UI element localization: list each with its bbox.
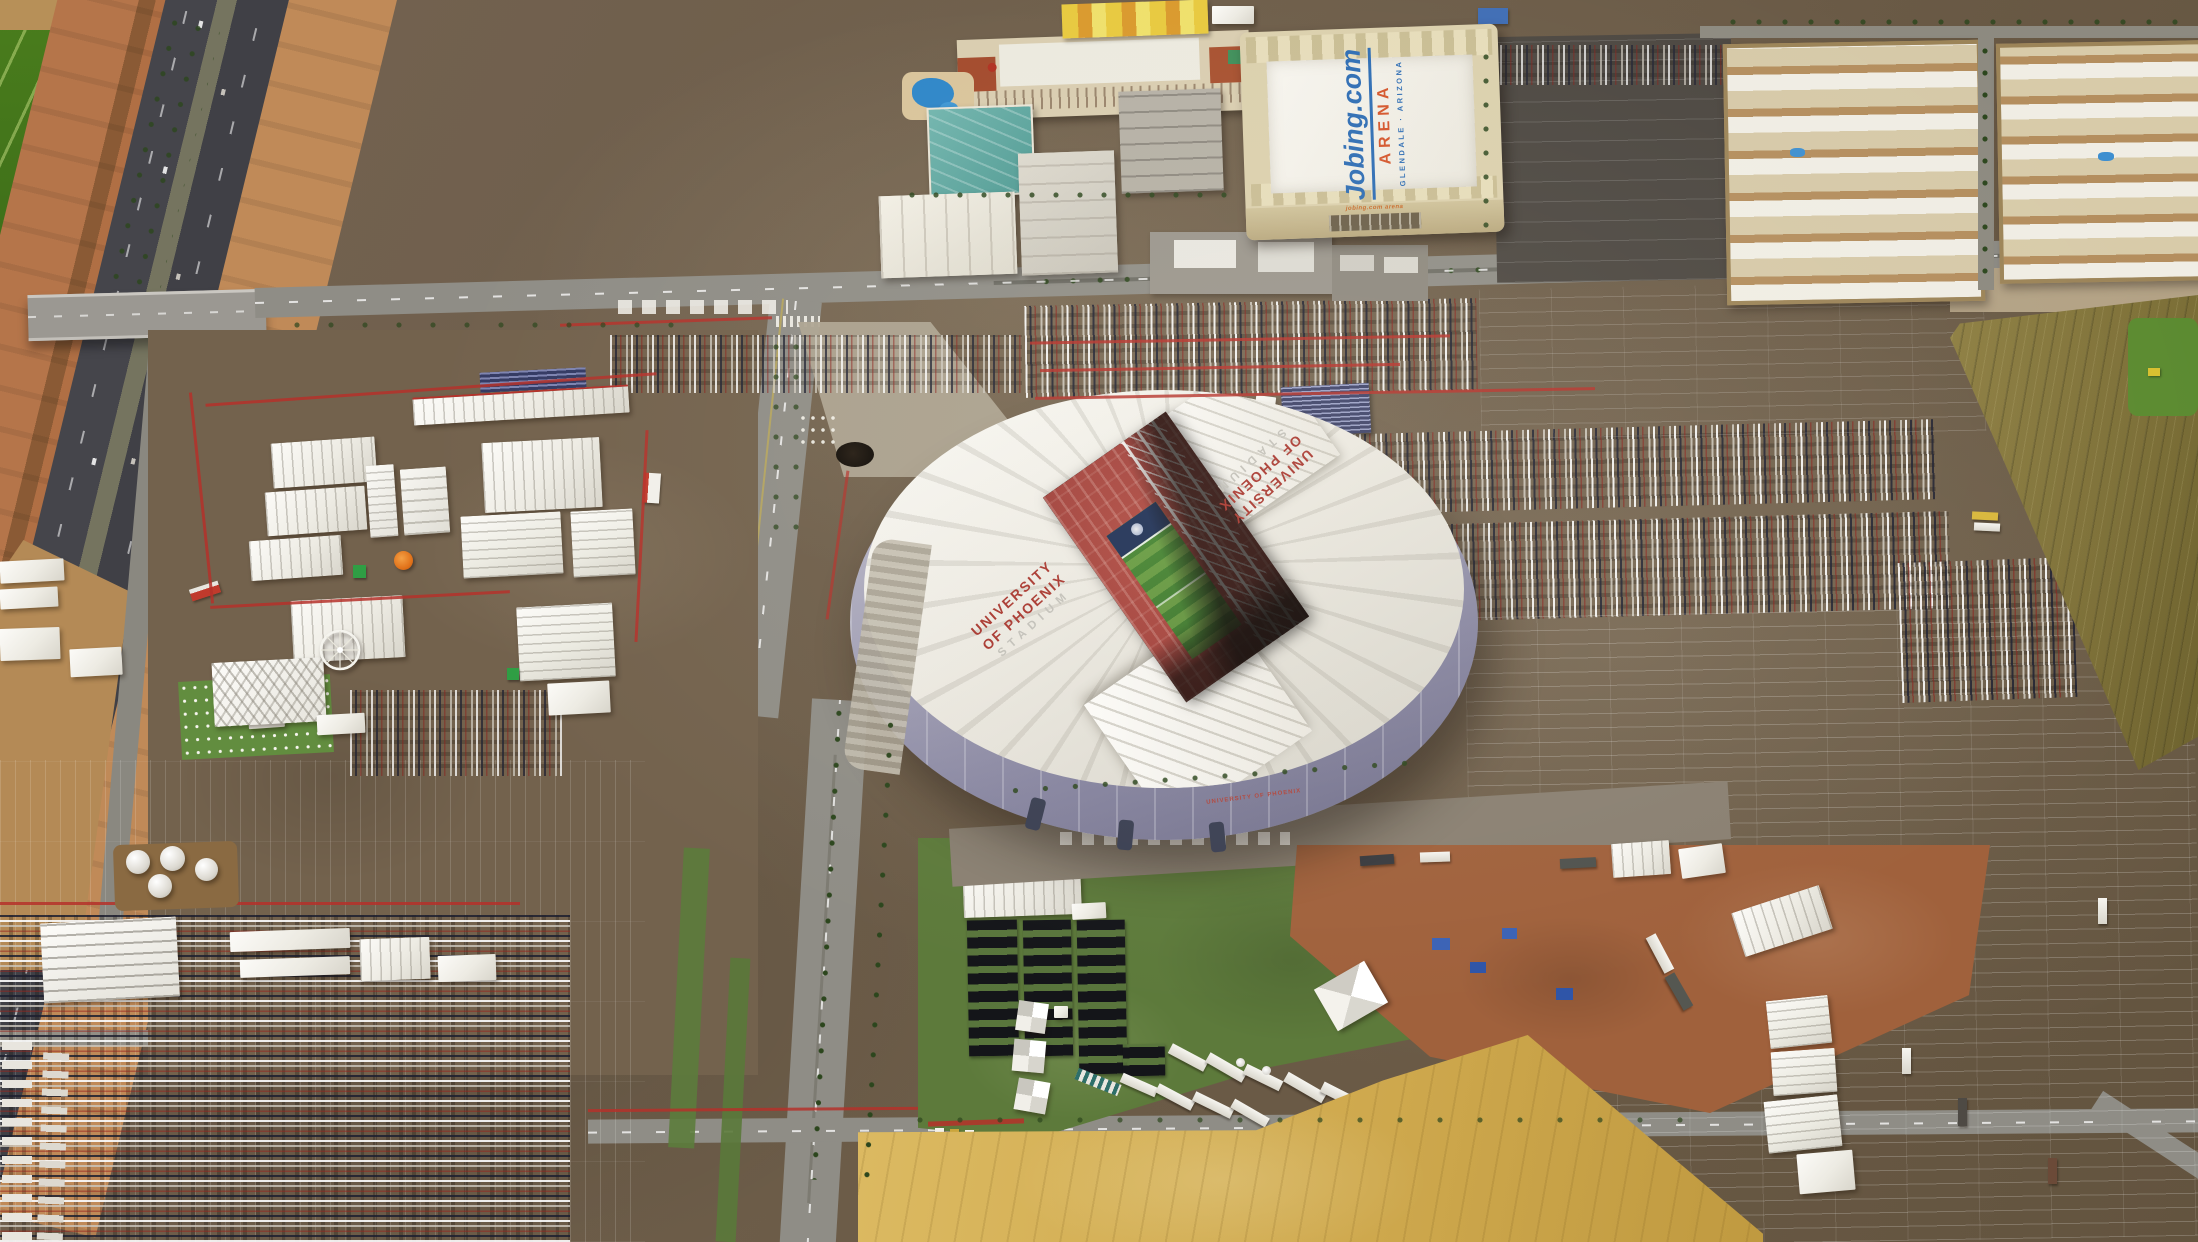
orange-dome-tent bbox=[394, 551, 413, 570]
plaza-trees bbox=[766, 332, 802, 532]
exhibit-tent bbox=[265, 486, 368, 537]
pyramid-tent bbox=[1013, 1077, 1050, 1114]
trailer bbox=[1958, 1098, 1967, 1126]
green-patch-farm-corner bbox=[2128, 318, 2198, 416]
stadium-wall-glass bbox=[1208, 821, 1226, 852]
arena-facade-sign: jobing.com arena bbox=[1346, 204, 1404, 212]
arena-roof: Jobing.com ARENA GLENDALE · ARIZONA bbox=[1266, 54, 1476, 193]
bus-white bbox=[1974, 522, 2000, 531]
trailer-column bbox=[2, 1042, 32, 1240]
utility-unit bbox=[1174, 240, 1236, 268]
arena-east-trees bbox=[1478, 45, 1494, 240]
edge-tent bbox=[0, 586, 58, 609]
exhibit-tent bbox=[570, 508, 635, 577]
edge-tent bbox=[69, 647, 122, 678]
apartment-complex-east bbox=[1996, 40, 2198, 284]
tent-strip bbox=[240, 956, 351, 978]
trailer bbox=[2048, 1158, 2057, 1184]
aerial-photo-stadium-district: UNIVERSITY OF PHOENIX STADIUM UNIVERSITY… bbox=[0, 0, 2198, 1242]
conference-hall-white bbox=[879, 192, 1018, 279]
arena: Jobing.com ARENA GLENDALE · ARIZONA jobi… bbox=[1239, 24, 1504, 241]
green-tent bbox=[507, 668, 519, 680]
northeast-car-band bbox=[1024, 298, 1478, 398]
tarp-blue bbox=[1502, 928, 1517, 939]
hospitality-tent bbox=[1763, 1094, 1842, 1153]
south-road-median-shrubs bbox=[900, 1116, 1700, 1124]
compound-black-rows-3 bbox=[1077, 920, 1128, 1075]
barricade bbox=[826, 471, 849, 620]
narrow-tent bbox=[366, 464, 399, 538]
arena-roof-text: Jobing.com ARENA GLENDALE · ARIZONA bbox=[1336, 47, 1408, 201]
chevron-pavilion bbox=[211, 657, 326, 727]
exhibit-tent bbox=[547, 680, 611, 715]
exhibit-tent bbox=[516, 603, 616, 682]
satellite-dish bbox=[1236, 1058, 1245, 1067]
small-tent-row bbox=[317, 713, 366, 735]
green-tent bbox=[353, 565, 366, 578]
hospitality-tent bbox=[1771, 1048, 1838, 1096]
tarp-blue bbox=[1432, 938, 1450, 950]
west-road-shrubs bbox=[280, 320, 700, 330]
yellow-tents bbox=[1061, 0, 1208, 39]
stadium-roof: UNIVERSITY OF PHOENIX STADIUM UNIVERSITY… bbox=[864, 390, 1464, 788]
top-right-street-trees bbox=[1720, 16, 2190, 28]
dome-tent bbox=[160, 846, 185, 871]
blue-tent bbox=[1478, 8, 1508, 24]
tent-strip bbox=[230, 928, 351, 952]
small-tent bbox=[1054, 1006, 1068, 1018]
yard-truck bbox=[1420, 851, 1450, 862]
apartment-complex-west bbox=[1723, 40, 1986, 305]
apartment-pool bbox=[1790, 148, 1805, 157]
cooling-block bbox=[1332, 245, 1428, 301]
exhibit-tent bbox=[271, 436, 378, 488]
dome-tent bbox=[195, 858, 218, 881]
cooling-unit bbox=[1340, 255, 1374, 271]
arena-south-facade: jobing.com arena bbox=[1246, 199, 1505, 240]
yard-truck bbox=[1560, 857, 1596, 869]
pyramid-tent bbox=[1015, 1000, 1049, 1034]
gate-tent bbox=[1611, 840, 1671, 878]
trailer bbox=[1902, 1048, 1911, 1074]
tent-block bbox=[438, 954, 497, 982]
ferris-wheel-icon bbox=[316, 626, 364, 674]
north-road-trailers bbox=[618, 300, 788, 314]
hangar-pleated bbox=[40, 916, 180, 1003]
farm-machine bbox=[2148, 368, 2160, 376]
apartment-street-trees bbox=[1977, 40, 1993, 290]
satellite-dish bbox=[1262, 1066, 1271, 1075]
big-exhibit-tent bbox=[481, 437, 603, 513]
far-right-dense-cars bbox=[1898, 557, 2078, 703]
tarp-blue bbox=[1556, 988, 1573, 1000]
edge-tent bbox=[0, 558, 65, 583]
dark-lot-cars bbox=[1500, 45, 1722, 85]
hospitality-tent bbox=[1766, 995, 1833, 1049]
dome-tent bbox=[126, 850, 150, 874]
pyramid-tent bbox=[1012, 1039, 1047, 1074]
exhibit-tent bbox=[249, 535, 344, 581]
compound-black-rows-1 bbox=[967, 920, 1019, 1057]
compound-black-rows-2 bbox=[1023, 920, 1073, 1057]
compound-black-rows-4 bbox=[1123, 1044, 1166, 1077]
arena-name: ARENA bbox=[1374, 48, 1397, 200]
utility-unit bbox=[1258, 242, 1314, 272]
small-tent bbox=[1072, 902, 1107, 920]
hotel-roof-white bbox=[999, 38, 1200, 87]
bridge-lane-line bbox=[28, 310, 266, 318]
parking-structure bbox=[1118, 88, 1223, 193]
stadium-wall-glass bbox=[1117, 819, 1135, 850]
arena-brand: Jobing.com bbox=[1336, 48, 1376, 201]
resort-gray-block bbox=[1018, 150, 1118, 275]
apartment-pool bbox=[2098, 152, 2114, 161]
cooling-unit bbox=[1384, 257, 1418, 273]
dome-tent bbox=[148, 874, 172, 898]
north-lot-cars bbox=[610, 335, 1022, 393]
trailer bbox=[2098, 898, 2107, 924]
arena-entrance bbox=[1329, 212, 1422, 231]
school-bus bbox=[1972, 511, 1998, 520]
white-tent-top bbox=[1212, 6, 1254, 24]
gate-tent bbox=[1678, 843, 1726, 879]
exhibit-tent bbox=[460, 511, 563, 578]
red-banner-west bbox=[0, 902, 520, 905]
booth-cluster bbox=[400, 466, 450, 535]
hospitality-tent bbox=[1796, 1150, 1855, 1195]
edge-tent bbox=[0, 627, 61, 661]
tarp-blue bbox=[1470, 962, 1486, 973]
hotel-frontage-trees bbox=[900, 188, 1250, 202]
mid-left-car-cluster bbox=[350, 690, 562, 776]
tent-block bbox=[359, 937, 430, 981]
plaza-flag-specks bbox=[798, 412, 838, 448]
